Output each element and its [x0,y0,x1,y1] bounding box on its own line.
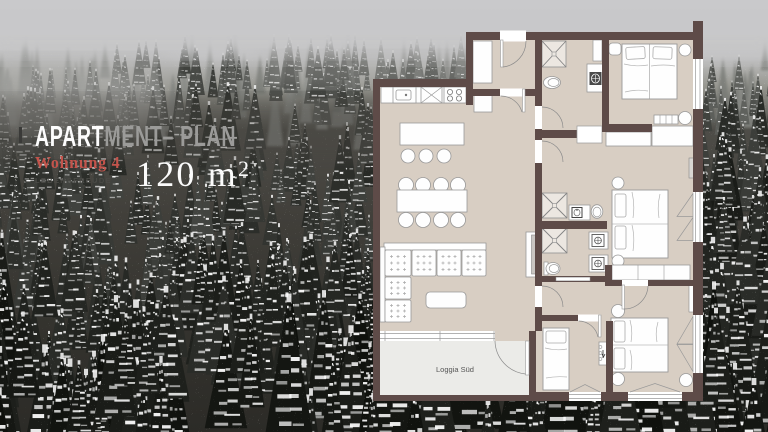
svg-text:Loggia Süd: Loggia Süd [436,365,474,374]
